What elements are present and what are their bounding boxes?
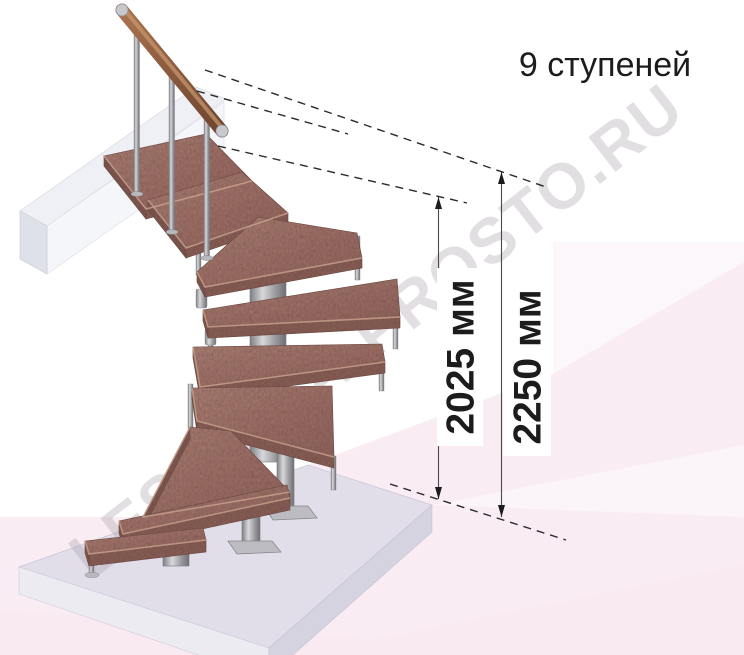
post-foot [201, 256, 213, 261]
handrail-cap-bottom [216, 125, 228, 137]
railing-post [204, 112, 210, 258]
arrowhead-up [435, 197, 442, 209]
staircase-illustration: LESTNICA-PROSTO.RU [0, 0, 744, 655]
extension-line-top-outer [205, 70, 549, 188]
arrowhead-up [498, 172, 505, 184]
baluster-foot [85, 572, 99, 577]
post-foot [131, 192, 143, 197]
post-foot [166, 230, 178, 235]
central-column-base-plate [228, 541, 281, 554]
dimension-label-2250: 2250 мм [507, 289, 550, 444]
railing-post [169, 68, 175, 232]
railing-post [134, 27, 140, 194]
handrail-cap-top [116, 4, 128, 16]
page-title: 9 ступеней [519, 46, 691, 84]
dimension-label-2025: 2025 мм [440, 279, 483, 434]
